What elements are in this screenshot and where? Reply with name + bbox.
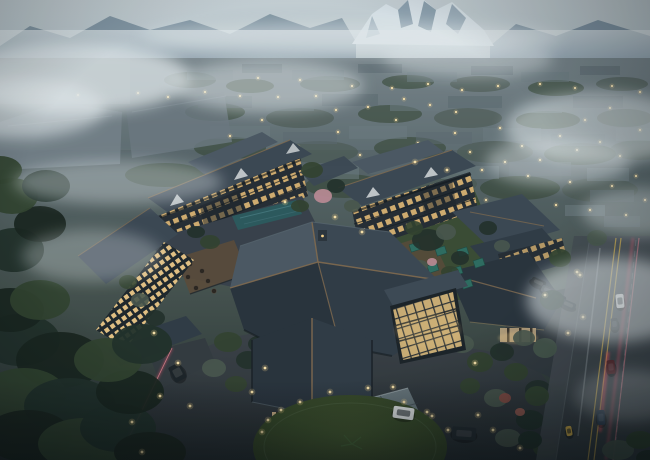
scene-canvas: [0, 0, 650, 460]
aerial-resort-rendering: [0, 0, 650, 460]
cool-tint: [0, 0, 650, 460]
